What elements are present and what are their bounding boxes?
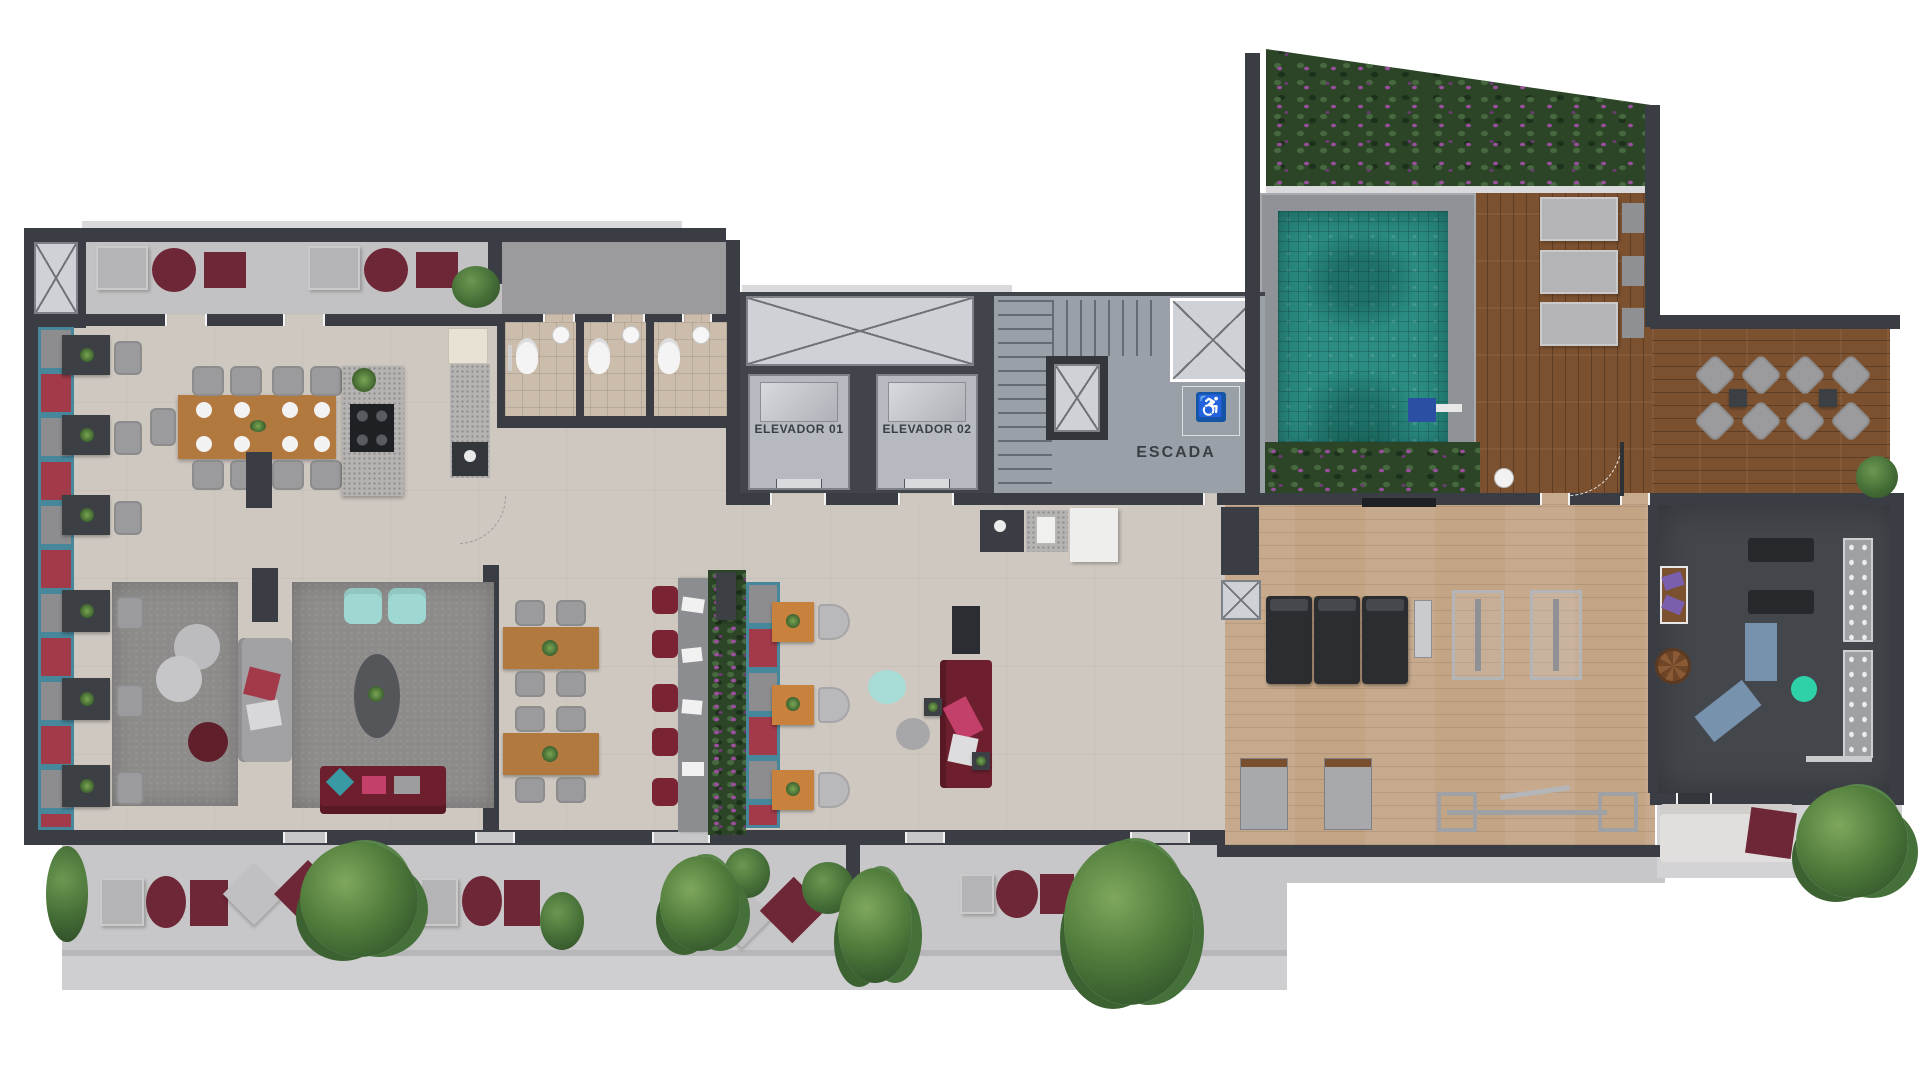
dining-chair [272, 460, 304, 490]
exercise-ball [1791, 676, 1817, 702]
bathroom-divider [646, 322, 654, 418]
gym-door-gap [1620, 493, 1650, 505]
dining-chair [310, 366, 342, 396]
dining-chair [230, 366, 262, 396]
elevator-1-car: ELEVADOR 01 [748, 374, 850, 490]
lobby-door-gap [898, 493, 954, 505]
terrace-daybed-round [462, 876, 502, 926]
hedge-planter-edge [1266, 186, 1658, 193]
tree-large [1064, 840, 1194, 1005]
gym-closet [1221, 507, 1259, 575]
ballet-barre [1806, 756, 1872, 762]
cable-machine [1240, 758, 1288, 830]
table-plant [80, 692, 94, 706]
cable-machine [1324, 758, 1372, 830]
kitchen-cabinet [448, 328, 488, 364]
table-plant [542, 640, 558, 656]
plate [196, 402, 212, 418]
shaft-x-topleft [34, 242, 78, 314]
tv-panel [952, 606, 980, 654]
pouf-mint [868, 670, 906, 704]
terrace-shrub [540, 892, 584, 950]
counter-stool-maroon [652, 728, 678, 756]
plate [282, 402, 298, 418]
sink-faucet [464, 450, 476, 462]
armchair-aqua [388, 588, 426, 624]
strength-machine [1530, 590, 1582, 680]
stair-shaft-x [1054, 364, 1100, 432]
parapet-core [742, 285, 1012, 292]
treadmill-console [1366, 599, 1404, 611]
table-centerpiece [250, 420, 266, 432]
balcony-lounge-chair [308, 246, 360, 290]
ottoman-red [188, 722, 228, 762]
treadmill-console [1270, 599, 1308, 611]
wall-core-left [726, 240, 740, 505]
elevator-2-doors [904, 479, 950, 488]
table-plant [80, 428, 94, 442]
banquette-chair [116, 771, 144, 805]
table-plant [80, 348, 94, 362]
pool-terrace-left-wall [1245, 53, 1260, 505]
coffee-machine [1036, 516, 1056, 544]
lobby-door-gap [770, 493, 826, 505]
gym-door-gap [1540, 493, 1570, 505]
terrace-mat-gray [100, 878, 144, 926]
bathroom-divider [576, 322, 584, 418]
tree [300, 842, 418, 957]
ottoman [156, 656, 202, 702]
balcony-plant [452, 266, 500, 308]
balcony-lounge-chair [96, 246, 148, 290]
plate [282, 436, 298, 452]
dumbbell-rack [1843, 538, 1873, 642]
round-wood-table [1655, 648, 1691, 684]
bathroom-sink [692, 326, 710, 344]
sofa-gray [238, 638, 292, 762]
cowork-chair [515, 600, 545, 626]
terrace-mat-maroon [190, 880, 228, 926]
plate [196, 436, 212, 452]
pergola-table [1729, 389, 1747, 407]
outer-wall-top-left-wing [24, 228, 726, 242]
elevator-2-label: ELEVADOR 02 [878, 422, 976, 436]
terrace-door-gap [652, 832, 710, 843]
pergola-top-wall [1650, 315, 1900, 329]
plate [314, 402, 330, 418]
workout-bench [1748, 590, 1814, 614]
service-cart [1070, 508, 1118, 562]
machine-bar [1553, 599, 1559, 671]
pool-lift-arm [1436, 404, 1462, 412]
armchair-aqua [344, 588, 382, 624]
treadmill [1314, 596, 1360, 684]
terrace-mat-gray [960, 874, 994, 914]
shaft-x-core [746, 296, 974, 366]
elevator-1-doors [776, 479, 822, 488]
deck-lounger [1540, 197, 1618, 241]
plate [314, 436, 330, 452]
machine-bar [1475, 599, 1481, 671]
table-plant [786, 697, 800, 711]
banquette-left [38, 327, 74, 830]
cowork-chair [556, 706, 586, 732]
toilet [658, 342, 680, 374]
grab-bar [508, 345, 512, 371]
bathrooms-bottom-wall [497, 416, 737, 428]
balcony-round-daybed [152, 248, 196, 292]
gym-bottom-wall [1217, 845, 1662, 857]
parapet-top-left [82, 221, 682, 228]
shaft-x-landing [1170, 298, 1256, 382]
bathroom-sink [622, 326, 640, 344]
outdoor-cushion-maroon [1745, 807, 1797, 859]
wheelchair-glyph: ♿ [1197, 394, 1224, 419]
pillow-gray [394, 776, 420, 794]
pool-lift [1408, 398, 1436, 422]
cowork-chair [515, 671, 545, 697]
dining-chair [272, 366, 304, 396]
dining-chair [310, 460, 342, 490]
table-plant [786, 782, 800, 796]
counter-stool-maroon [652, 630, 678, 658]
treadmill [1266, 596, 1312, 684]
table-plant [786, 614, 800, 628]
table-plant [542, 746, 558, 762]
banquette-chair [116, 684, 144, 718]
terrace-door-gap [905, 832, 945, 843]
step-bench [1414, 600, 1432, 658]
pergola-table [1819, 389, 1837, 407]
cowork-chair [515, 777, 545, 803]
banquette-chair [114, 421, 142, 455]
banquette-chair [116, 596, 144, 630]
escada-label: ESCADA [1096, 444, 1256, 462]
lounger-side-table [1622, 256, 1644, 286]
stair-flight-top [1052, 300, 1162, 356]
top-hedge-planter [1266, 40, 1658, 190]
dining-chair [192, 460, 224, 490]
elevator-2-car: ELEVADOR 02 [876, 374, 978, 490]
plate [234, 436, 250, 452]
table-plant [928, 702, 938, 712]
deck-lounger [1540, 302, 1618, 346]
pool-south-planter [1260, 442, 1480, 494]
lounger-side-table [1622, 308, 1644, 338]
pool-terrace-right-wall [1645, 105, 1660, 327]
toilet [588, 342, 610, 374]
table-plant [976, 756, 986, 766]
column [252, 568, 278, 622]
dumbbell-rack [1843, 650, 1873, 758]
table-plant [80, 604, 94, 618]
elevator-2-cab [888, 382, 966, 422]
door-gap [283, 314, 325, 326]
terrace-door-gap [475, 832, 515, 843]
cowork-chair [556, 671, 586, 697]
toilet [516, 342, 538, 374]
pouf-gray [896, 718, 930, 750]
workout-bench [1748, 538, 1814, 562]
cooktop [350, 404, 394, 452]
door-gap [165, 314, 207, 326]
yoga-mat-blue [1745, 623, 1777, 681]
planter-box [716, 572, 736, 620]
pillow-pink [362, 776, 386, 794]
laptop [681, 597, 705, 614]
table-plant [80, 508, 94, 522]
floor-plan: ELEVADOR 01 ELEVADOR 02 ♿ ESCADA [0, 0, 1920, 1080]
cowork-chair [556, 777, 586, 803]
fitness-right-wall [1890, 493, 1904, 805]
elevator-1-cab [760, 382, 838, 422]
service-corridor-floor [502, 240, 726, 316]
barbell-bar [1447, 810, 1607, 815]
column [246, 452, 272, 508]
bathroom-sink [552, 326, 570, 344]
laptop [682, 762, 704, 776]
treadmill [1362, 596, 1408, 684]
laptop [681, 647, 702, 663]
dining-chair [192, 366, 224, 396]
tree [838, 868, 912, 983]
terrace-daybed-round [146, 876, 186, 928]
bottom-wall-left-wing [24, 830, 1225, 845]
terrace-daybed-round [996, 870, 1038, 918]
outdoor-shower [1494, 468, 1514, 488]
table-plant [80, 779, 94, 793]
banquette-chair [114, 501, 142, 535]
gym-door-leaf [1620, 442, 1624, 496]
cowork-chair [556, 600, 586, 626]
gym-walkway [1210, 857, 1665, 883]
elevator-1-label: ELEVADOR 01 [750, 422, 848, 436]
dining-chair-end [150, 408, 176, 446]
terrace-shrub [46, 846, 88, 942]
lounger-side-table [1622, 203, 1644, 233]
gym-fitness-divider [1648, 505, 1658, 793]
tea-faucet [994, 520, 1006, 532]
balcony-square-lounger [204, 252, 246, 288]
laptop [681, 699, 702, 715]
treadmill-console [1318, 599, 1356, 611]
counter-stool-maroon [652, 586, 678, 614]
island-plant [352, 368, 376, 392]
strength-machine [1452, 590, 1504, 680]
counter-stool-maroon [652, 778, 678, 806]
terrace-mat-gray [420, 878, 458, 926]
pergola-shrub [1856, 456, 1898, 498]
plate [234, 402, 250, 418]
tree [660, 856, 740, 951]
gym-tv [1362, 498, 1436, 507]
stair-flight-left [998, 300, 1052, 498]
sofa-pillow-white [246, 699, 282, 730]
balcony-round-daybed [364, 248, 408, 292]
deck-lounger [1540, 250, 1618, 294]
table-plant [368, 686, 384, 702]
cowork-chair [515, 706, 545, 732]
terrace-mat-maroon [504, 880, 540, 926]
counter-stool-maroon [652, 684, 678, 712]
terrace-door-gap [283, 832, 327, 843]
accessibility-icon: ♿ [1196, 392, 1226, 422]
gym-shaft-x [1221, 580, 1261, 620]
banquette-chair [114, 341, 142, 375]
tree [1796, 786, 1908, 898]
